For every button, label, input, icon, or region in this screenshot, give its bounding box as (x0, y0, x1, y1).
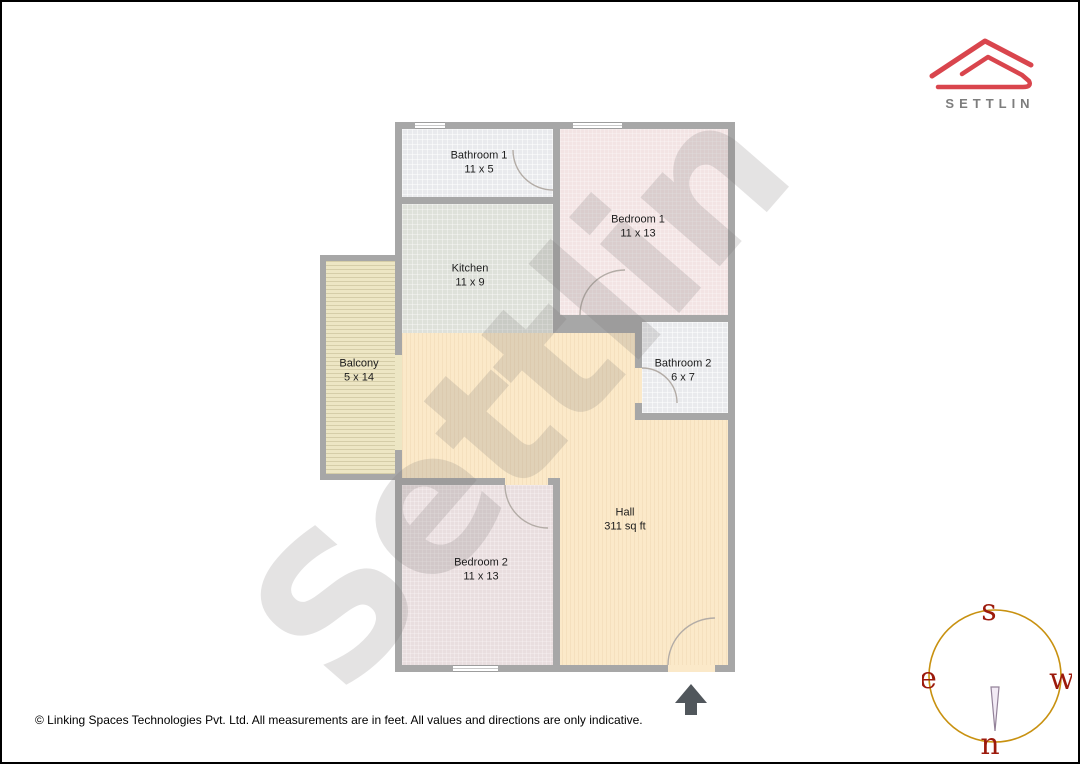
room-dims: 11 x 13 (454, 570, 508, 584)
floorplan-page: Bathroom 1 11 x 5 Bedroom 1 11 x 13 Kitc… (0, 0, 1080, 764)
room-dims: 11 x 5 (451, 163, 508, 177)
label-bedroom1: Bedroom 1 11 x 13 (611, 214, 665, 241)
label-bedroom2: Bedroom 2 11 x 13 (454, 557, 508, 584)
room-dims: 5 x 14 (339, 371, 378, 385)
compass-south: s (981, 596, 996, 628)
room-name: Kitchen (452, 263, 489, 277)
room-name: Hall (604, 507, 645, 521)
bedroom1-door-arc (580, 270, 625, 315)
room-name: Balcony (339, 358, 378, 372)
disclaimer-text: © Linking Spaces Technologies Pvt. Ltd. … (35, 713, 643, 727)
label-hall: Hall 311 sq ft (604, 507, 645, 534)
settlin-logo: SETTLIN (928, 28, 1043, 113)
north-arrow-icon (674, 684, 708, 716)
room-name: Bedroom 2 (454, 557, 508, 571)
room-dims: 11 x 9 (452, 276, 489, 290)
bathroom1-door-arc (513, 150, 553, 190)
compass-needle-icon (991, 687, 999, 731)
door-swing-arcs (320, 122, 735, 672)
room-name: Bathroom 2 (655, 358, 712, 372)
room-dims: 6 x 7 (655, 371, 712, 385)
logo-brand-text: SETTLIN (945, 96, 1034, 111)
compass: s e w n (922, 596, 1072, 764)
compass-north: n (980, 727, 999, 762)
compass-west: w (1049, 662, 1072, 697)
label-kitchen: Kitchen 11 x 9 (452, 263, 489, 290)
room-dims: 11 x 13 (611, 227, 665, 241)
bedroom2-door-arc (505, 485, 548, 528)
room-dims: 311 sq ft (604, 520, 645, 534)
entrance-door-arc (668, 618, 715, 665)
label-bathroom1: Bathroom 1 11 x 5 (451, 150, 508, 177)
label-balcony: Balcony 5 x 14 (339, 358, 378, 385)
room-name: Bedroom 1 (611, 214, 665, 228)
room-name: Bathroom 1 (451, 150, 508, 164)
label-bathroom2: Bathroom 2 6 x 7 (655, 358, 712, 385)
compass-east: e (922, 661, 937, 696)
